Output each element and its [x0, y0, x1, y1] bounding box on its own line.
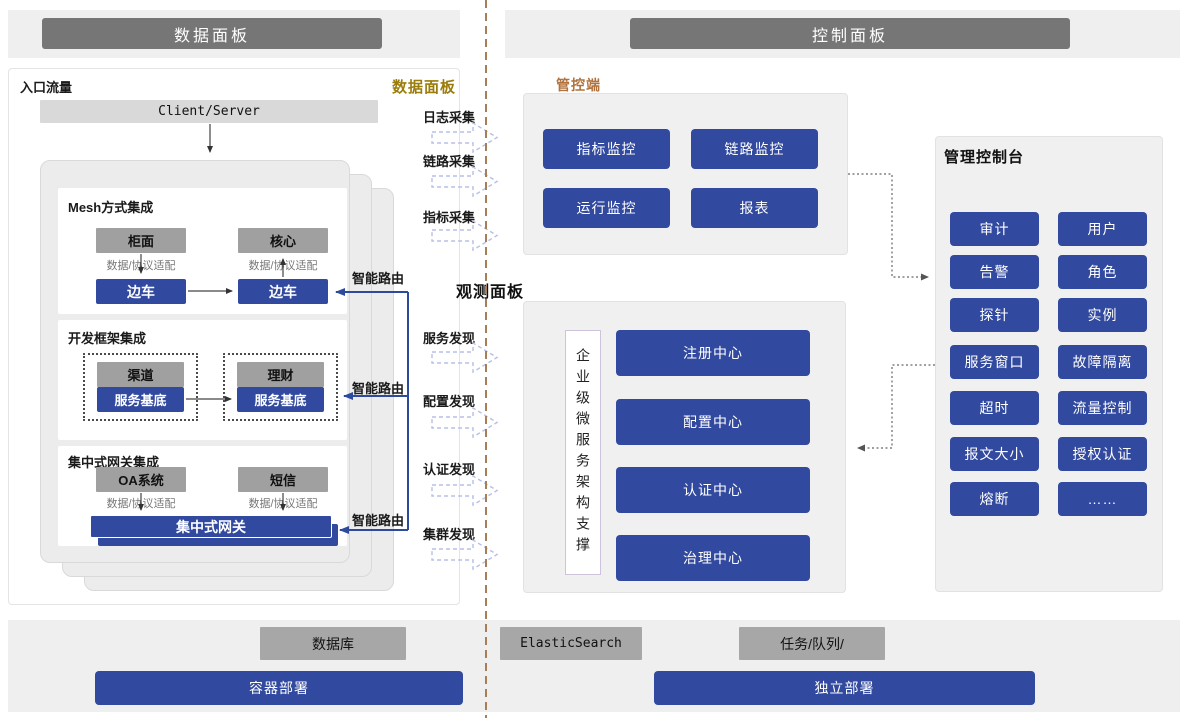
console-button-alert: 告警 — [950, 255, 1039, 289]
management-console-title: 管理控制台 — [944, 146, 1024, 167]
gateway-box-sms: 短信 — [238, 467, 328, 492]
console-button-audit: 审计 — [950, 212, 1039, 246]
button-config-center: 配置中心 — [616, 399, 810, 445]
service-base-box-2: 服务基底 — [237, 387, 324, 412]
standalone-deploy-bar: 独立部署 — [654, 671, 1035, 705]
console-button-message-size: 报文大小 — [950, 437, 1039, 471]
button-registry-center: 注册中心 — [616, 330, 810, 376]
framework-box-wealth: 理财 — [237, 362, 324, 387]
mesh-box-counter: 柜面 — [96, 228, 186, 253]
console-button-role: 角色 — [1058, 255, 1147, 289]
client-server-bar: Client/Server — [40, 100, 378, 123]
console-to-observe-connector — [858, 365, 935, 448]
collect-label-metrics: 指标采集 — [423, 207, 475, 226]
console-button-authz: 授权认证 — [1058, 437, 1147, 471]
monitor-panel — [523, 93, 848, 255]
gateway-adapt-label-1: 数据/协议适配 — [96, 495, 186, 511]
console-button-timeout: 超时 — [950, 391, 1039, 425]
discover-label-auth: 认证发现 — [423, 459, 475, 478]
console-button-flow-control: 流量控制 — [1058, 391, 1147, 425]
framework-box-channel: 渠道 — [97, 362, 184, 387]
container-deploy-bar: 容器部署 — [95, 671, 463, 705]
console-button-more: …… — [1058, 482, 1147, 516]
smart-route-label-2: 智能路由 — [352, 378, 404, 397]
button-runtime-monitor: 运行监控 — [543, 188, 670, 228]
entry-traffic-label: 入口流量 — [20, 77, 72, 96]
discover-label-service: 服务发现 — [423, 328, 475, 347]
control-end-label: 管控端 — [556, 75, 601, 95]
sidecar-box-1: 边车 — [96, 279, 186, 304]
console-button-user: 用户 — [1058, 212, 1147, 246]
discover-label-cluster: 集群发现 — [423, 524, 475, 543]
data-plane-header: 数据面板 — [42, 18, 382, 49]
central-gateway-bar: 集中式网关 — [90, 515, 332, 538]
smart-route-label-3: 智能路由 — [352, 510, 404, 529]
gateway-adapt-label-2: 数据/协议适配 — [238, 495, 328, 511]
service-base-box-1: 服务基底 — [97, 387, 184, 412]
sidecar-box-2: 边车 — [238, 279, 328, 304]
microservice-support-vertical-label: 企业级微服务架构支撑 — [565, 330, 601, 575]
console-button-probe: 探针 — [950, 298, 1039, 332]
console-button-service-window: 服务窗口 — [950, 345, 1039, 379]
monitor-to-console-connector — [848, 174, 928, 277]
gateway-box-oa: OA系统 — [96, 467, 186, 492]
console-button-circuit-break: 熔断 — [950, 482, 1039, 516]
framework-section-title: 开发框架集成 — [68, 328, 146, 347]
task-queue-bar: 任务/队列/ — [739, 627, 885, 660]
button-report: 报表 — [691, 188, 818, 228]
observe-plane-label: 观测面板 — [456, 278, 524, 302]
data-plane-badge: 数据面板 — [370, 76, 456, 97]
mesh-adapt-label-1: 数据/协议适配 — [96, 257, 186, 273]
console-button-fault-isolation: 故障隔离 — [1058, 345, 1147, 379]
button-auth-center: 认证中心 — [616, 467, 810, 513]
button-metric-monitor: 指标监控 — [543, 129, 670, 169]
mesh-box-core: 核心 — [238, 228, 328, 253]
mesh-section-title: Mesh方式集成 — [68, 197, 153, 216]
console-button-instance: 实例 — [1058, 298, 1147, 332]
control-plane-header: 控制面板 — [630, 18, 1070, 49]
database-bar: 数据库 — [260, 627, 406, 660]
button-governance-center: 治理中心 — [616, 535, 810, 581]
collect-label-logs: 日志采集 — [423, 107, 475, 126]
smart-route-label-1: 智能路由 — [352, 268, 404, 287]
discover-label-config: 配置发现 — [423, 391, 475, 410]
mesh-adapt-label-2: 数据/协议适配 — [238, 257, 328, 273]
button-trace-monitor: 链路监控 — [691, 129, 818, 169]
collect-label-trace: 链路采集 — [423, 151, 475, 170]
elasticsearch-bar: ElasticSearch — [500, 627, 642, 660]
